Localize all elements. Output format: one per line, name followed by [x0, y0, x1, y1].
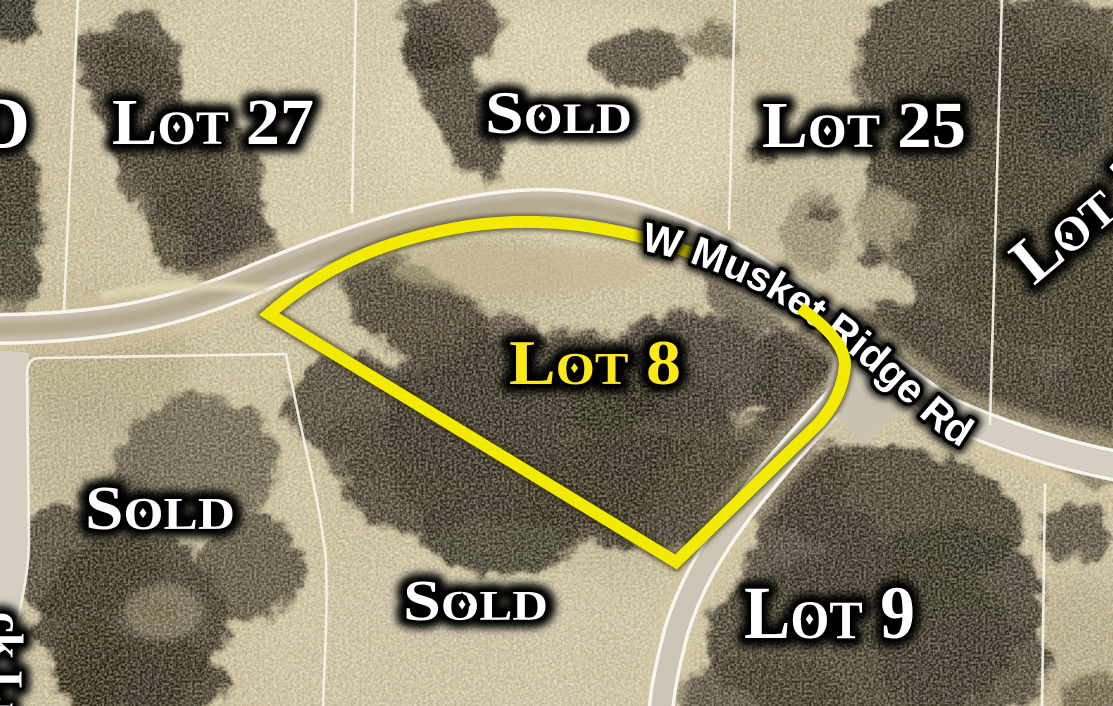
svg-text:D: D	[0, 83, 30, 165]
svg-text:ck Ln: ck Ln	[0, 612, 32, 706]
